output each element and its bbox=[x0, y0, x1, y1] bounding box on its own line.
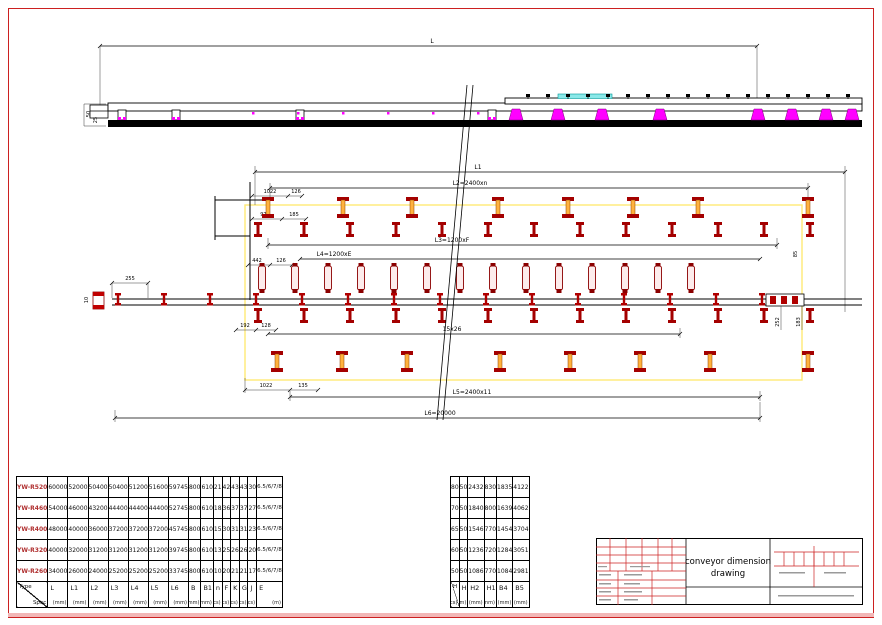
column-unit: (mm) bbox=[133, 600, 147, 606]
dim-label-252: 252 bbox=[775, 317, 781, 327]
column-label: L3 bbox=[111, 584, 119, 592]
value-cell: 31 bbox=[239, 519, 248, 540]
column-header: L1(mm) bbox=[68, 582, 88, 608]
value-cell: 59745 bbox=[168, 477, 188, 498]
column-header: B1(mm) bbox=[201, 582, 213, 608]
value-cell: 44400 bbox=[108, 498, 128, 519]
column-header: L5(mm) bbox=[148, 582, 168, 608]
dim-label-L1: L1 bbox=[474, 164, 481, 171]
dim-label-85: 85 bbox=[793, 251, 799, 257]
value-cell: 39745 bbox=[168, 540, 188, 561]
value-cell: 48000 bbox=[48, 519, 68, 540]
model-name: YW-R460 bbox=[17, 498, 48, 519]
table-row: YW-R460540004600043200444004440044400527… bbox=[17, 498, 283, 519]
value-cell: 32000 bbox=[68, 540, 88, 561]
column-header: E(m) bbox=[257, 582, 283, 608]
break-lines bbox=[437, 85, 473, 420]
value-cell: 50 bbox=[459, 561, 468, 582]
drawing-sheet: L 50 25 bbox=[0, 0, 882, 625]
value-cell: 2432 bbox=[468, 477, 484, 498]
end-pulley bbox=[90, 105, 108, 118]
column-header: B4(mm) bbox=[497, 582, 513, 608]
value-cell: 44400 bbox=[148, 498, 168, 519]
table-row: YW-R260340002600024000252002520025200337… bbox=[17, 561, 283, 582]
dim-label-L3: L3=1200xF bbox=[435, 237, 470, 244]
value-cell: 6.5/6/7/8 bbox=[257, 498, 283, 519]
column-unit: (pcs) bbox=[213, 600, 220, 606]
value-cell: 25200 bbox=[148, 561, 168, 582]
dim-label-L5: L5=2400x11 bbox=[453, 389, 492, 396]
value-cell: 10 bbox=[213, 561, 222, 582]
value-cell: 18 bbox=[213, 498, 222, 519]
plan-view-components bbox=[115, 197, 814, 372]
column-unit: (mm) bbox=[498, 600, 512, 606]
value-cell: 1454 bbox=[497, 519, 513, 540]
column-unit: (mm) bbox=[173, 600, 187, 606]
header-row: TypeSpecL(mm)L1(mm)L2(mm)L3(mm)L4(mm)L5(… bbox=[17, 582, 283, 608]
value-cell: 42 bbox=[222, 477, 231, 498]
value-cell: 800 bbox=[188, 498, 200, 519]
value-cell: 1086 bbox=[468, 561, 484, 582]
value-cell: 610 bbox=[201, 540, 213, 561]
value-cell: 25200 bbox=[128, 561, 148, 582]
dim-label-128: 128 bbox=[261, 323, 271, 329]
value-cell: 15 bbox=[213, 519, 222, 540]
ground-bar bbox=[108, 120, 862, 127]
value-cell: 52000 bbox=[68, 477, 88, 498]
dim-label-192: 192 bbox=[240, 323, 250, 329]
value-cell: 610 bbox=[201, 561, 213, 582]
value-cell: 50400 bbox=[88, 477, 108, 498]
table-row: YW-R520600005200050400504005120051600597… bbox=[17, 477, 283, 498]
column-header: F(pcs) bbox=[222, 582, 231, 608]
value-cell: 43 bbox=[239, 477, 248, 498]
value-cell: 13 bbox=[213, 540, 222, 561]
value-cell: 80 bbox=[451, 477, 460, 498]
value-cell: 1840 bbox=[468, 498, 484, 519]
header-row: H(pcs)H3(mm)H2(mm)H1(mm)B4(mm)B5(mm) bbox=[451, 582, 530, 608]
value-cell: 36 bbox=[222, 498, 231, 519]
table-row: YW-R320400003200031200312003120031200397… bbox=[17, 540, 283, 561]
column-label: L4 bbox=[131, 584, 139, 592]
model-name: YW-R400 bbox=[17, 519, 48, 540]
corner-top-label: Type bbox=[19, 584, 32, 590]
column-header: K(pcs) bbox=[231, 582, 240, 608]
corner-bottom-label: Spec bbox=[33, 600, 46, 606]
value-cell: 800 bbox=[188, 519, 200, 540]
column-label: J bbox=[250, 584, 252, 592]
column-unit: (pcs) bbox=[239, 600, 246, 606]
column-label: B1 bbox=[203, 584, 212, 592]
value-cell: 51200 bbox=[128, 477, 148, 498]
value-cell: 2981 bbox=[513, 561, 529, 582]
table-row: 5050108677010842981 bbox=[451, 561, 530, 582]
dim-label-L6: L6=20000 bbox=[424, 410, 455, 417]
value-cell: 60000 bbox=[48, 477, 68, 498]
value-cell: 610 bbox=[201, 477, 213, 498]
column-label: B bbox=[191, 584, 195, 592]
value-cell: 60 bbox=[451, 540, 460, 561]
value-cell: 3704 bbox=[513, 519, 529, 540]
model-name: YW-R520 bbox=[17, 477, 48, 498]
column-unit: (mm) bbox=[469, 600, 483, 606]
table-row: 6050123672012843051 bbox=[451, 540, 530, 561]
column-header: H2(mm) bbox=[468, 582, 484, 608]
column-label: H1 bbox=[487, 584, 496, 592]
column-label: L bbox=[50, 584, 54, 592]
value-cell: 720 bbox=[484, 540, 496, 561]
column-unit: (mm) bbox=[93, 600, 107, 606]
value-cell: 27 bbox=[248, 498, 257, 519]
value-cell: 40000 bbox=[68, 519, 88, 540]
dim-label-255: 255 bbox=[125, 276, 135, 282]
value-cell: 31 bbox=[231, 519, 240, 540]
cad-drawing: L 50 25 bbox=[0, 0, 882, 472]
value-cell: 770 bbox=[484, 519, 496, 540]
value-cell: 36000 bbox=[88, 519, 108, 540]
value-cell: 54000 bbox=[48, 498, 68, 519]
column-label: L2 bbox=[91, 584, 99, 592]
column-unit: (mm) bbox=[53, 600, 67, 606]
value-cell: 24000 bbox=[88, 561, 108, 582]
value-cell: 31200 bbox=[108, 540, 128, 561]
table-row: 6550154677014543704 bbox=[451, 519, 530, 540]
column-header: H1(mm) bbox=[484, 582, 496, 608]
corner-bottom-label: (pcs) bbox=[451, 600, 458, 606]
column-header: L3(mm) bbox=[108, 582, 128, 608]
value-cell: 21 bbox=[239, 561, 248, 582]
value-cell: 37200 bbox=[108, 519, 128, 540]
value-cell: 43 bbox=[231, 477, 240, 498]
value-cell: 50 bbox=[459, 477, 468, 498]
column-header: L2(mm) bbox=[88, 582, 108, 608]
table-row: 8050243283018354122 bbox=[451, 477, 530, 498]
value-cell: 44400 bbox=[128, 498, 148, 519]
column-header: n(pcs) bbox=[213, 582, 222, 608]
column-label: L6 bbox=[171, 584, 179, 592]
value-cell: 1835 bbox=[497, 477, 513, 498]
value-cell: 37 bbox=[239, 498, 248, 519]
drawing-title-line1: conveyor dimension bbox=[685, 557, 771, 567]
column-label: G bbox=[242, 584, 247, 592]
value-cell: 65 bbox=[451, 519, 460, 540]
value-cell: 26 bbox=[239, 540, 248, 561]
value-cell: 17 bbox=[248, 561, 257, 582]
value-cell: 34000 bbox=[48, 561, 68, 582]
column-header: G(pcs) bbox=[239, 582, 248, 608]
value-cell: 800 bbox=[188, 477, 200, 498]
value-cell: 1084 bbox=[497, 561, 513, 582]
column-unit: (mm) bbox=[113, 600, 127, 606]
corner-top-label: H bbox=[453, 584, 457, 590]
value-cell: 800 bbox=[188, 561, 200, 582]
column-label: L1 bbox=[70, 584, 78, 592]
value-cell: 20 bbox=[222, 561, 231, 582]
value-cell: 37 bbox=[231, 498, 240, 519]
value-cell: 70 bbox=[451, 498, 460, 519]
corner-cell: TypeSpec bbox=[17, 582, 48, 608]
column-unit: (mm) bbox=[484, 600, 495, 606]
column-unit: (m) bbox=[272, 600, 281, 606]
value-cell: 3051 bbox=[513, 540, 529, 561]
value-cell: 26000 bbox=[68, 561, 88, 582]
value-cell: 51600 bbox=[148, 477, 168, 498]
dim-label-183: 183 bbox=[796, 317, 802, 327]
value-cell: 6.5/6/7/8 bbox=[257, 561, 283, 582]
value-cell: 6.5/6/7/8 bbox=[257, 540, 283, 561]
value-cell: 1236 bbox=[468, 540, 484, 561]
column-unit: (pcs) bbox=[248, 600, 255, 606]
column-unit: (pcs) bbox=[222, 600, 229, 606]
column-header: J(pcs) bbox=[248, 582, 257, 608]
value-cell: 31200 bbox=[88, 540, 108, 561]
value-cell: 610 bbox=[201, 519, 213, 540]
column-label: B5 bbox=[515, 584, 524, 592]
drawing-title-line2: drawing bbox=[711, 569, 745, 579]
column-header: H3(mm) bbox=[459, 582, 468, 608]
column-unit: (mm) bbox=[459, 600, 466, 606]
value-cell: 770 bbox=[484, 561, 496, 582]
dim-label-135: 135 bbox=[298, 383, 308, 389]
value-cell: 50 bbox=[459, 498, 468, 519]
value-cell: 4122 bbox=[513, 477, 529, 498]
dim-label-L4: L4=1200xE bbox=[317, 251, 352, 258]
column-unit: (pcs) bbox=[231, 600, 238, 606]
value-cell: 52745 bbox=[168, 498, 188, 519]
corner-cell: H(pcs) bbox=[451, 582, 460, 608]
value-cell: 37200 bbox=[148, 519, 168, 540]
value-cell: 25 bbox=[222, 540, 231, 561]
value-cell: 830 bbox=[484, 477, 496, 498]
value-cell: 50 bbox=[451, 561, 460, 582]
column-unit: (mm) bbox=[201, 600, 212, 606]
value-cell: 1639 bbox=[497, 498, 513, 519]
dim-label-10: 10 bbox=[84, 297, 90, 303]
value-cell: 30 bbox=[248, 477, 257, 498]
column-unit: (mm) bbox=[188, 600, 199, 606]
value-cell: 46000 bbox=[68, 498, 88, 519]
value-cell: 800 bbox=[188, 540, 200, 561]
table-row: 7050184080016394062 bbox=[451, 498, 530, 519]
value-cell: 21 bbox=[213, 477, 222, 498]
value-cell: 50400 bbox=[108, 477, 128, 498]
value-cell: 610 bbox=[201, 498, 213, 519]
value-cell: 43200 bbox=[88, 498, 108, 519]
column-header: L(mm) bbox=[48, 582, 68, 608]
value-cell: 26 bbox=[231, 540, 240, 561]
value-cell: 23 bbox=[248, 519, 257, 540]
value-cell: 33745 bbox=[168, 561, 188, 582]
dim-label-185: 185 bbox=[289, 212, 299, 218]
dim-label-126-mid: 126 bbox=[276, 258, 286, 264]
column-header: L6(mm) bbox=[168, 582, 188, 608]
plan-view: L1 L2=2400xn 1022 126 973 185 442 bbox=[84, 164, 862, 422]
title-block: conveyor dimension drawing bbox=[596, 538, 863, 605]
column-unit: (mm) bbox=[73, 600, 87, 606]
dim-label-126-top: 126 bbox=[291, 189, 301, 195]
value-cell: 50 bbox=[459, 540, 468, 561]
column-header: B5(mm) bbox=[513, 582, 529, 608]
column-header: B(mm) bbox=[188, 582, 200, 608]
column-label: K bbox=[233, 584, 237, 592]
column-label: F bbox=[225, 584, 229, 592]
table-row: YW-R400480004000036000372003720037200457… bbox=[17, 519, 283, 540]
column-unit: (mm) bbox=[153, 600, 167, 606]
dim-label-height-50: 50 bbox=[86, 111, 92, 117]
column-header: L4(mm) bbox=[128, 582, 148, 608]
column-label: E bbox=[259, 584, 263, 592]
value-cell: 6.5/6/7/8 bbox=[257, 519, 283, 540]
value-cell: 21 bbox=[231, 561, 240, 582]
value-cell: 30 bbox=[222, 519, 231, 540]
sheet-bottom-accent bbox=[8, 613, 874, 617]
value-cell: 6.5/6/7/8 bbox=[257, 477, 283, 498]
column-label: B4 bbox=[499, 584, 508, 592]
column-label: n bbox=[216, 584, 220, 592]
dim-label-1022-bottom: 1022 bbox=[260, 383, 273, 389]
value-cell: 45745 bbox=[168, 519, 188, 540]
value-cell: 25200 bbox=[108, 561, 128, 582]
value-cell: 1284 bbox=[497, 540, 513, 561]
value-cell: 20 bbox=[248, 540, 257, 561]
column-label: L5 bbox=[151, 584, 159, 592]
value-cell: 800 bbox=[484, 498, 496, 519]
side-view: L 50 25 bbox=[84, 38, 862, 127]
value-cell: 37200 bbox=[128, 519, 148, 540]
dim-label-1022-top: 1022 bbox=[264, 189, 277, 195]
model-name: YW-R320 bbox=[17, 540, 48, 561]
value-cell: 40000 bbox=[48, 540, 68, 561]
value-cell: 31200 bbox=[148, 540, 168, 561]
value-cell: 50 bbox=[459, 519, 468, 540]
value-cell: 4062 bbox=[513, 498, 529, 519]
model-name: YW-R260 bbox=[17, 561, 48, 582]
column-unit: (mm) bbox=[514, 600, 528, 606]
value-cell: 1546 bbox=[468, 519, 484, 540]
dim-label-overall-length: L bbox=[430, 38, 434, 45]
value-cell: 31200 bbox=[128, 540, 148, 561]
column-label: H2 bbox=[470, 584, 479, 592]
dim-label-height-25: 25 bbox=[93, 117, 99, 123]
